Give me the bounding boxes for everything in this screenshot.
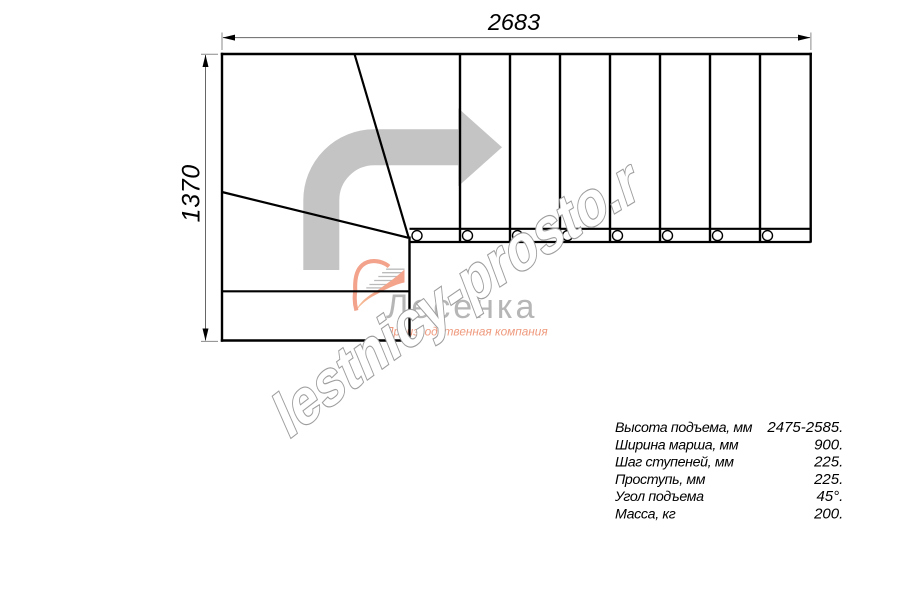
svg-text:Высота подъема, мм: Высота подъема, мм xyxy=(615,420,753,436)
svg-text:225.: 225. xyxy=(813,471,843,488)
svg-text:900.: 900. xyxy=(814,436,843,453)
svg-text:200.: 200. xyxy=(813,506,843,523)
svg-text:Ширина марша, мм: Ширина марша, мм xyxy=(615,437,739,453)
svg-text:45°.: 45°. xyxy=(816,488,843,505)
svg-text:2475-2585.: 2475-2585. xyxy=(766,419,843,436)
svg-text:225.: 225. xyxy=(813,454,843,471)
svg-text:2683: 2683 xyxy=(487,9,540,35)
svg-text:Проступь, мм: Проступь, мм xyxy=(615,472,706,488)
svg-text:Масса, кг: Масса, кг xyxy=(615,507,676,523)
svg-text:Угол подъема: Угол подъема xyxy=(614,489,704,505)
svg-text:Шаг ступеней, мм: Шаг ступеней, мм xyxy=(615,455,734,471)
svg-text:1370: 1370 xyxy=(178,164,206,222)
